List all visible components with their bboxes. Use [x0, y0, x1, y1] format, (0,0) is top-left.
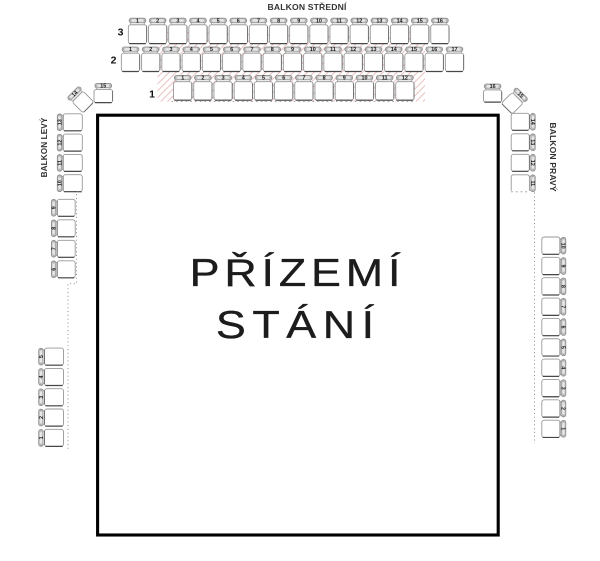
svg-text:13: 13 — [529, 139, 535, 145]
svg-text:14: 14 — [397, 18, 403, 24]
svg-text:12: 12 — [350, 47, 356, 53]
svg-text:1: 1 — [136, 18, 139, 24]
svg-text:STÁNÍ: STÁNÍ — [216, 303, 381, 347]
svg-text:5: 5 — [39, 355, 45, 358]
svg-text:13: 13 — [58, 119, 64, 125]
svg-text:8: 8 — [271, 47, 274, 53]
svg-text:4: 4 — [242, 76, 245, 82]
svg-text:3: 3 — [222, 76, 225, 82]
svg-text:6: 6 — [52, 268, 58, 271]
svg-text:7: 7 — [251, 47, 254, 53]
svg-text:11: 11 — [382, 76, 388, 82]
svg-text:6: 6 — [230, 47, 233, 53]
svg-text:5: 5 — [210, 47, 213, 53]
svg-text:7: 7 — [257, 18, 260, 24]
svg-text:10: 10 — [316, 18, 322, 24]
svg-text:12: 12 — [402, 76, 408, 82]
svg-text:3: 3 — [176, 18, 179, 24]
svg-text:1: 1 — [149, 89, 155, 101]
svg-text:2: 2 — [201, 76, 204, 82]
svg-text:1: 1 — [181, 76, 184, 82]
svg-text:4: 4 — [560, 366, 566, 369]
svg-text:12: 12 — [529, 160, 535, 166]
svg-text:11: 11 — [529, 180, 535, 186]
svg-text:9: 9 — [291, 47, 294, 53]
svg-text:4: 4 — [39, 375, 45, 378]
svg-text:7: 7 — [302, 76, 305, 82]
svg-text:BALKON LEVÝ: BALKON LEVÝ — [38, 117, 49, 177]
svg-text:8: 8 — [52, 227, 58, 230]
svg-text:4: 4 — [190, 47, 193, 53]
svg-text:13: 13 — [376, 18, 382, 24]
svg-text:4: 4 — [196, 18, 199, 24]
svg-text:2: 2 — [156, 18, 159, 24]
svg-text:9: 9 — [297, 18, 300, 24]
svg-text:6: 6 — [560, 326, 566, 329]
svg-text:7: 7 — [560, 305, 566, 308]
svg-text:2: 2 — [111, 55, 117, 67]
svg-text:8: 8 — [323, 76, 326, 82]
svg-text:5: 5 — [560, 346, 566, 349]
svg-text:8: 8 — [560, 285, 566, 288]
svg-text:11: 11 — [330, 47, 336, 53]
svg-text:BALKON PRAVÝ: BALKON PRAVÝ — [548, 122, 559, 191]
svg-text:BALKON STŘEDNÍ: BALKON STŘEDNÍ — [268, 1, 347, 12]
svg-text:9: 9 — [343, 76, 346, 82]
svg-text:PŘÍZEMÍ: PŘÍZEMÍ — [190, 251, 406, 295]
svg-text:12: 12 — [356, 18, 362, 24]
svg-text:13: 13 — [371, 47, 377, 53]
svg-text:2: 2 — [149, 47, 152, 53]
svg-text:9: 9 — [560, 265, 566, 268]
svg-text:5: 5 — [262, 76, 265, 82]
svg-text:15: 15 — [411, 47, 417, 53]
svg-text:6: 6 — [282, 76, 285, 82]
svg-text:2: 2 — [39, 416, 45, 419]
svg-text:3: 3 — [118, 27, 124, 39]
svg-text:16: 16 — [431, 47, 437, 53]
svg-text:10: 10 — [310, 47, 316, 53]
svg-text:7: 7 — [52, 247, 58, 250]
svg-text:12: 12 — [58, 140, 64, 146]
svg-text:14: 14 — [529, 119, 535, 125]
svg-text:3: 3 — [560, 387, 566, 390]
svg-text:1: 1 — [560, 427, 566, 430]
svg-text:9: 9 — [52, 206, 58, 209]
svg-text:10: 10 — [560, 243, 566, 249]
svg-text:15: 15 — [100, 84, 106, 90]
svg-text:16: 16 — [437, 18, 443, 24]
svg-text:17: 17 — [452, 47, 458, 53]
svg-text:5: 5 — [217, 18, 220, 24]
svg-text:6: 6 — [237, 18, 240, 24]
svg-text:15: 15 — [417, 18, 423, 24]
svg-text:3: 3 — [39, 396, 45, 399]
svg-text:11: 11 — [58, 160, 64, 166]
svg-text:10: 10 — [362, 76, 368, 82]
svg-text:2: 2 — [560, 407, 566, 410]
svg-text:8: 8 — [277, 18, 280, 24]
svg-text:11: 11 — [336, 18, 342, 24]
svg-text:16: 16 — [490, 84, 496, 90]
svg-text:3: 3 — [170, 47, 173, 53]
svg-text:1: 1 — [129, 47, 132, 53]
svg-text:10: 10 — [58, 180, 64, 186]
svg-text:1: 1 — [39, 436, 45, 439]
svg-text:14: 14 — [391, 47, 397, 53]
